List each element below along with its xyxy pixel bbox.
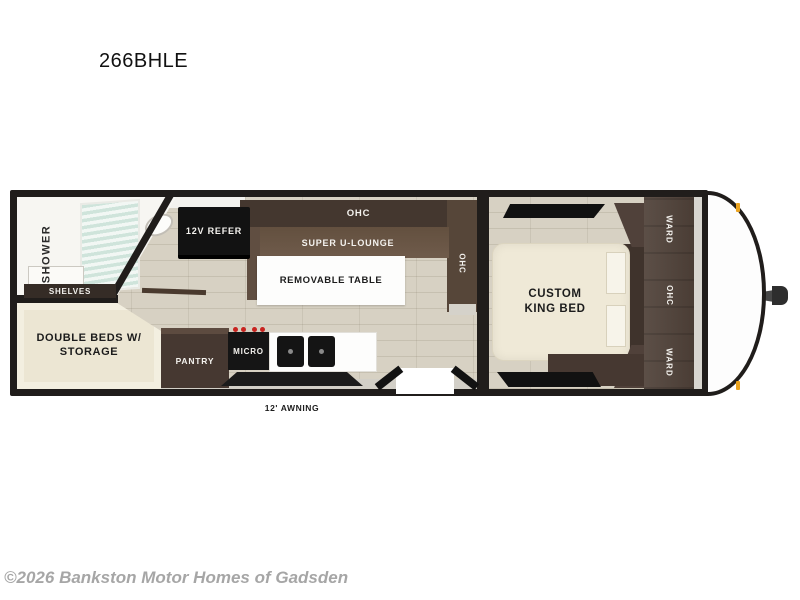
floorplan-image: 266BHLE SHOWER SHELVES DOUBLE BEDS W/ ST… [0, 0, 800, 600]
ohc-top-label: OHC [347, 208, 371, 219]
hitch-coupler [772, 286, 788, 305]
marker-light-top [736, 203, 740, 212]
wardrobe-bottom: WARD [644, 335, 694, 390]
microwave-range: MICRO [228, 332, 269, 370]
ohc-side-label: OHC [458, 253, 467, 273]
entry-door [396, 368, 454, 394]
overhead-cabinet-top: OHC [240, 200, 477, 227]
double-beds-label: DOUBLE BEDS W/ STORAGE [37, 332, 142, 360]
wardrobe-edge [694, 197, 702, 389]
sink-basin [277, 336, 304, 367]
model-title: 266BHLE [99, 50, 188, 73]
bedroom-divider-wall [477, 190, 489, 396]
bedroom-window-top [503, 204, 605, 218]
bedside-shelf [606, 252, 626, 294]
refer-label: 12V REFER [186, 226, 242, 236]
shower-label-wrap: SHOWER [34, 214, 58, 294]
drain-icon [319, 349, 324, 354]
shower-label: SHOWER [40, 225, 52, 284]
pantry: PANTRY [161, 328, 229, 388]
overhead-cabinet-bedroom: OHC [644, 270, 694, 320]
shelves-label: SHELVES [49, 287, 91, 296]
bedside-shelf [606, 305, 626, 347]
shower-glass [80, 199, 140, 293]
pantry-label: PANTRY [176, 356, 215, 366]
overhead-cabinet-side: OHC [447, 236, 477, 290]
marker-light-bottom [736, 381, 740, 390]
sink-basin [308, 336, 335, 367]
drain-icon [288, 349, 293, 354]
copyright-watermark: ©2026 Bankston Motor Homes of Gadsden [4, 568, 348, 588]
lounge-step [449, 304, 476, 315]
galley-mat [221, 372, 363, 386]
ward-top-label: WARD [664, 215, 673, 243]
lounge-label: SUPER U-LOUNGE [302, 238, 395, 248]
trailer-front-cap [704, 191, 766, 396]
bedroom-window-bottom [497, 372, 601, 387]
refrigerator: 12V REFER [178, 207, 250, 259]
removable-table: REMOVABLE TABLE [257, 256, 405, 305]
table-label: REMOVABLE TABLE [280, 275, 383, 286]
ohc-bed-label: OHC [665, 285, 674, 306]
awning-label: 12' AWNING [252, 403, 332, 413]
king-bed-label: CUSTOM KING BED [524, 287, 585, 317]
shelves: SHELVES [24, 284, 116, 298]
wardrobe-top: WARD [644, 202, 694, 257]
micro-label: MICRO [233, 347, 264, 356]
super-u-lounge: SUPER U-LOUNGE [247, 227, 449, 258]
ward-bottom-label: WARD [664, 348, 673, 376]
